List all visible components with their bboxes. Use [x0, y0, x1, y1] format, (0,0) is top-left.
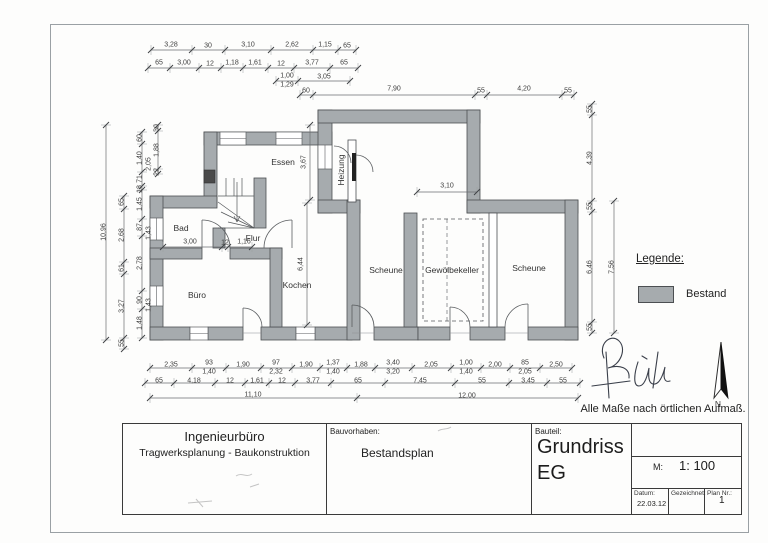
dimension-label: 1,16 [237, 239, 251, 246]
dimension-label: 18 [137, 185, 144, 193]
dimension-label: 3,77 [305, 60, 319, 67]
dimension-label: 1,88 [154, 143, 161, 157]
dimension-label: 7,45 [413, 378, 427, 385]
dimension-label: 12 [226, 378, 234, 385]
room-label: Bad [173, 223, 188, 233]
dimension-label: 3,28 [164, 42, 178, 49]
dimension-label: 4,20 [517, 86, 531, 93]
part-name-line2: EG [537, 462, 566, 485]
dimension-label: 1,61 [248, 60, 262, 67]
drawn-by-label: Gezeichnet: [671, 490, 706, 497]
dimension-label: 3,77 [306, 378, 320, 385]
dimension-label: 22 [154, 168, 161, 176]
title-block-divider [531, 424, 532, 514]
title-block-divider [326, 424, 327, 514]
signature [592, 338, 670, 398]
dimension-label: 2,62 [285, 42, 299, 49]
dimension-label: 3,20 [386, 369, 400, 376]
scale-label: M: [653, 462, 663, 472]
dimension-label: 1,90 [236, 362, 250, 369]
dimension-label: 1,40 [137, 151, 144, 165]
dimension-label: 55 [559, 378, 567, 385]
dimension-label: 3,40 [386, 360, 400, 367]
dimension-label: 1,43 [146, 298, 153, 312]
walls [150, 110, 578, 340]
dimension-label: 55 [587, 105, 594, 113]
title-block: Ingenieurbüro Tragwerksplanung - Baukons… [122, 423, 742, 515]
dimension-label: 1,15 [318, 42, 332, 49]
dimension-label: 55 [477, 88, 485, 95]
dimension-label: 11,10 [245, 392, 262, 399]
dimension-label: 6,44 [298, 257, 305, 271]
dimension-label: 55 [587, 323, 594, 331]
measure-note: Alle Maße nach örtlichen Aufmaß. [580, 403, 745, 415]
dimension-label: 3,00 [177, 60, 191, 67]
dimension-label: 1,40 [326, 369, 340, 376]
plan-number-value: 1 [719, 495, 725, 506]
room-label: Gewölbekeller [425, 265, 479, 275]
dimension-label: 3,00 [183, 239, 197, 246]
room-label: Scheune [369, 265, 403, 275]
title-block-divider [631, 456, 741, 457]
dimension-label: 3,05 [317, 74, 331, 81]
dimension-label: 71 [137, 175, 144, 183]
dimension-label: 1,18 [225, 60, 239, 67]
dimension-label: 1,40 [202, 369, 216, 376]
dimension-label: 97 [272, 360, 280, 367]
dimension-label: 2,35 [164, 362, 178, 369]
dimension-label: 4,39 [587, 151, 594, 165]
dimension-label: 12 [221, 240, 229, 247]
dimension-label: 65 [343, 43, 351, 50]
dimension-label: 87 [137, 223, 144, 231]
room-label: Kochen [283, 280, 312, 290]
dimension-label: 65 [354, 378, 362, 385]
dimension-label: 60 [137, 134, 144, 142]
dimension-label: 2,50 [549, 362, 563, 369]
dimension-label: 55 [587, 202, 594, 210]
room-label: Heizung [336, 154, 346, 185]
scale-value: 1: 100 [679, 458, 715, 473]
dimension-label: 2,05 [424, 362, 438, 369]
north-arrow-icon [714, 342, 728, 398]
dimension-label: 1,00 [459, 360, 473, 367]
title-block-divider [668, 488, 669, 514]
dimension-label: 3,67 [301, 155, 308, 169]
project-label: Bauvorhaben: [330, 427, 380, 436]
title-block-divider [631, 488, 741, 489]
dimension-label: 1,48 [137, 316, 144, 330]
dimension-label: 2,05 [518, 369, 532, 376]
dimension-label: 2,00 [488, 362, 502, 369]
dimension-label: 65 [155, 60, 163, 67]
legend-bestand-swatch [638, 286, 674, 303]
dimension-label: 4,18 [187, 378, 201, 385]
part-label: Bauteil: [535, 427, 562, 436]
dimension-label: 10,96 [101, 223, 108, 241]
project-name: Bestandsplan [361, 446, 434, 460]
dimension-label: 6,46 [587, 260, 594, 274]
room-label: Büro [188, 290, 206, 300]
legend-bestand-label: Bestand [686, 288, 726, 300]
dimension-label: 2,68 [119, 228, 126, 242]
dimension-label: 1,61 [250, 378, 264, 385]
dimension-label: 85 [521, 360, 529, 367]
dimension-label: 1,88 [354, 362, 368, 369]
dimension-label: 55 [564, 88, 572, 95]
dimension-label: 90 [137, 296, 144, 304]
date-value: 22.03.12 [637, 499, 666, 508]
dimension-label: 7,90 [387, 86, 401, 93]
dimension-label: 12 [206, 61, 214, 68]
dimension-label: 1,00 [280, 73, 294, 80]
dimension-label: 93 [205, 360, 213, 367]
dimension-label: 1,40 [459, 369, 473, 376]
dimension-label: 7,56 [609, 260, 616, 274]
dimension-label: 30 [154, 124, 161, 132]
dimension-label: 30 [204, 43, 212, 50]
dimension-label: 65 [340, 60, 348, 67]
dimension-label: 3,10 [440, 183, 454, 190]
part-name-line1: Grundriss [537, 436, 624, 459]
dimension-label: 12 [278, 378, 286, 385]
dimension-label: 2,78 [137, 256, 144, 270]
dimension-label: 2,32 [269, 369, 283, 376]
dimension-label: 1,45 [137, 197, 144, 211]
company-subtitle: Tragwerksplanung - Baukonstruktion [123, 447, 326, 459]
dimension-label: 1,37 [326, 360, 340, 367]
dimension-label: 3,10 [241, 42, 255, 49]
dimension-label: 55 [119, 339, 126, 347]
room-label: Scheune [512, 263, 546, 273]
dimension-label: 12,00 [458, 393, 476, 400]
dimension-label: 1,43 [146, 226, 153, 240]
dimension-label: 65 [155, 378, 163, 385]
dimension-label: 12 [277, 61, 285, 68]
dimension-label: 65 [119, 198, 126, 206]
title-block-divider [631, 424, 632, 514]
dimension-label: 1,90 [299, 362, 313, 369]
dimension-label: 1,29 [280, 82, 294, 89]
dimension-label: 60 [302, 88, 310, 95]
date-label: Datum: [634, 490, 655, 497]
dimension-label: 61 [119, 264, 126, 272]
dimension-label: 2,05 [146, 157, 153, 171]
dimension-label: 55 [478, 378, 486, 385]
dimension-label: 3,45 [521, 378, 535, 385]
room-label: Essen [271, 157, 295, 167]
company-name: Ingenieurbüro [123, 429, 326, 444]
dimension-label: 3,27 [119, 299, 126, 313]
legend-title: Legende: [636, 253, 684, 265]
